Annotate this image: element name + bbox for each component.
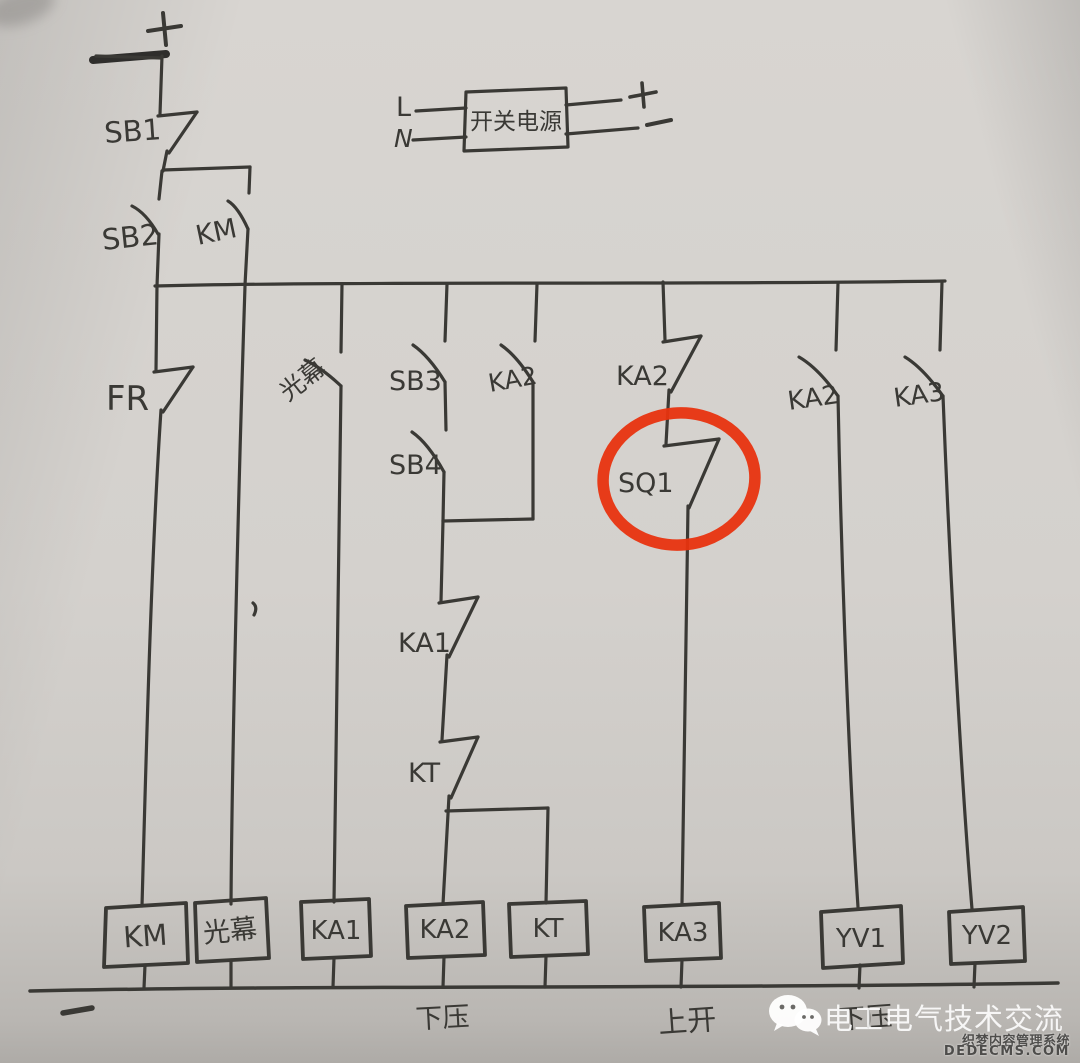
light-curtain-coil-rung: [231, 286, 245, 904]
sq1-label: SQ1: [618, 468, 674, 499]
light-curtain-coil-label: 光幕: [202, 913, 259, 949]
sb1-contact: [158, 56, 197, 171]
fr-label: FR: [106, 379, 149, 419]
schematic-drawing: + SB1 SB2 KM L N 开关电源 FR 光幕 SB3 SB4 KA2 …: [0, 0, 1080, 1063]
stray-pen-mark: [253, 603, 256, 615]
l-terminal-label: L: [396, 92, 411, 123]
sb3-sb4-rung: [412, 284, 447, 521]
minus-polarity-mark: [63, 1008, 92, 1013]
ka1-kt-interlocks: [439, 521, 548, 904]
km-contact-label: KM: [193, 213, 240, 252]
up-open-label: 上开: [657, 1002, 717, 1040]
yv2-coil-label: YV2: [961, 921, 1012, 951]
down-press-label-2: 下压: [837, 1001, 893, 1036]
ka3-no-label: KA3: [892, 377, 947, 414]
kt-coil-label: KT: [533, 914, 564, 944]
top-bus: [155, 281, 945, 286]
yv1-coil-label: YV1: [835, 924, 886, 954]
n-terminal-label: N: [394, 124, 413, 153]
ka1-coil-label: KA1: [311, 916, 362, 946]
coil-bottom-stems: [144, 956, 975, 988]
sb2-label: SB2: [100, 217, 160, 257]
ka2no-rung: [799, 283, 858, 907]
ka1-nc-label: KA1: [398, 628, 451, 659]
photo-of-hand-drawn-schematic: + SB1 SB2 KM L N 开关电源 FR 光幕 SB3 SB4 KA2 …: [0, 0, 1080, 1063]
ka2-seal-in-branch: [443, 284, 537, 521]
ka2-seal-in-label: KA2: [486, 361, 539, 398]
light-curtain-contact-label: 光幕: [274, 353, 331, 407]
power-supply-label: 开关电源: [470, 109, 562, 135]
ka2-nc-label: KA2: [616, 361, 669, 392]
sb4-label: SB4: [389, 450, 442, 481]
km-coil-label: KM: [122, 918, 168, 955]
ka3-coil-label: KA3: [658, 918, 709, 948]
down-press-label: 下压: [415, 1002, 471, 1036]
kt-nc-label: KT: [408, 758, 441, 789]
ka2nc-sq1-rung: [663, 282, 719, 903]
ka3no-rung: [905, 282, 972, 909]
sb1-label: SB1: [103, 112, 162, 150]
ka2-coil-label: KA2: [420, 915, 471, 945]
fr-rung: [142, 285, 193, 906]
ka2-no-label: KA2: [786, 380, 841, 417]
sb3-label: SB3: [389, 366, 442, 397]
